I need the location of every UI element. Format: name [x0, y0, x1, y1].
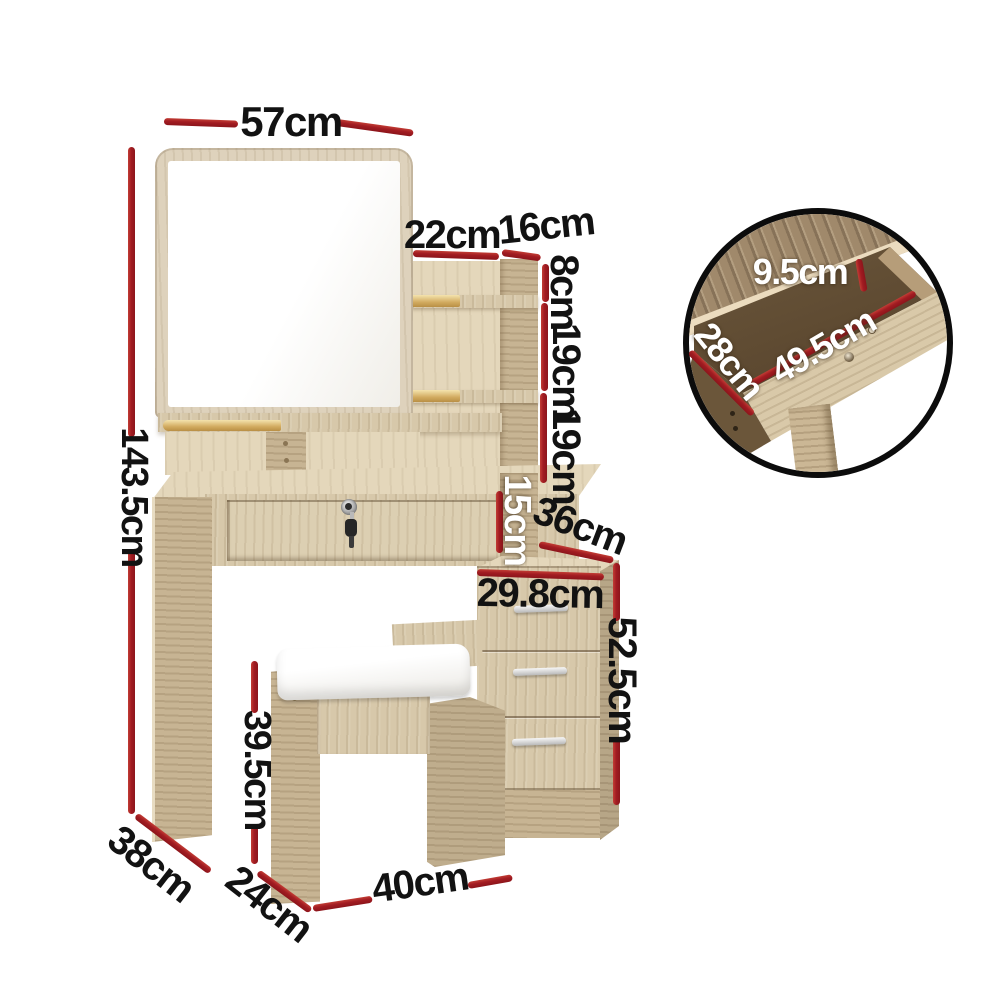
- dim-line-overall-height-lower: [128, 550, 135, 814]
- hanging-key-head: [345, 519, 357, 537]
- dim-label-shelf-gap-2: 19cm: [546, 408, 586, 504]
- inset-side-screw: [730, 411, 735, 416]
- desk-drawer-front: [227, 500, 507, 561]
- dim-label-mirror-width: 57cm: [240, 101, 341, 143]
- stool-left-panel: [271, 667, 320, 904]
- mirror-glass: [168, 161, 400, 407]
- hanging-key-tip: [349, 536, 354, 548]
- dim-label-shelf-top-gap: 8cm: [544, 254, 584, 330]
- drawer-lock-keyhole: [345, 503, 352, 510]
- shelf-tower-side-panel: [500, 259, 538, 481]
- mirror-support-bracket: [266, 432, 306, 475]
- dim-line-cabinet-height-lower: [613, 737, 620, 805]
- dim-line-cabinet-height-upper: [613, 563, 620, 621]
- stool-cushion: [276, 643, 470, 700]
- dim-line-overall-height-upper: [128, 147, 135, 437]
- bracket-screw: [284, 458, 289, 463]
- dim-label-cabinet-width: 29.8cm: [476, 573, 603, 615]
- dim-label-cabinet-height: 52.5cm: [602, 617, 642, 744]
- inset-side-screw: [733, 426, 738, 431]
- dim-label-overall-height: 143.5cm: [115, 427, 153, 567]
- shelf-tower-back-panel: [412, 261, 502, 473]
- stool-apron: [317, 692, 430, 754]
- dim-label-shelf-gap-1: 19cm: [546, 323, 586, 419]
- dim-label-shelf-width: 22cm: [404, 215, 500, 255]
- desk-left-panel: [152, 497, 212, 842]
- dim-line-stool-height-upper: [251, 661, 258, 713]
- dimension-diagram: 57cm 22cm 16cm 8cm 19cm 19cm 143.5cm 15c…: [0, 0, 1000, 1000]
- mirror-ledge-brass-edge: [163, 420, 281, 431]
- inset-table-leg: [788, 404, 840, 478]
- stool-right-panel: [427, 697, 505, 867]
- dim-label-tower-depth: 16cm: [496, 201, 596, 251]
- dim-line-stool-height-lower: [251, 826, 258, 864]
- dim-label-stool-height: 39.5cm: [238, 710, 276, 830]
- dim-label-drawer-inner-height: 9.5cm: [753, 254, 848, 290]
- cabinet-drawer-divider: [477, 650, 601, 652]
- bracket-screw: [283, 441, 288, 446]
